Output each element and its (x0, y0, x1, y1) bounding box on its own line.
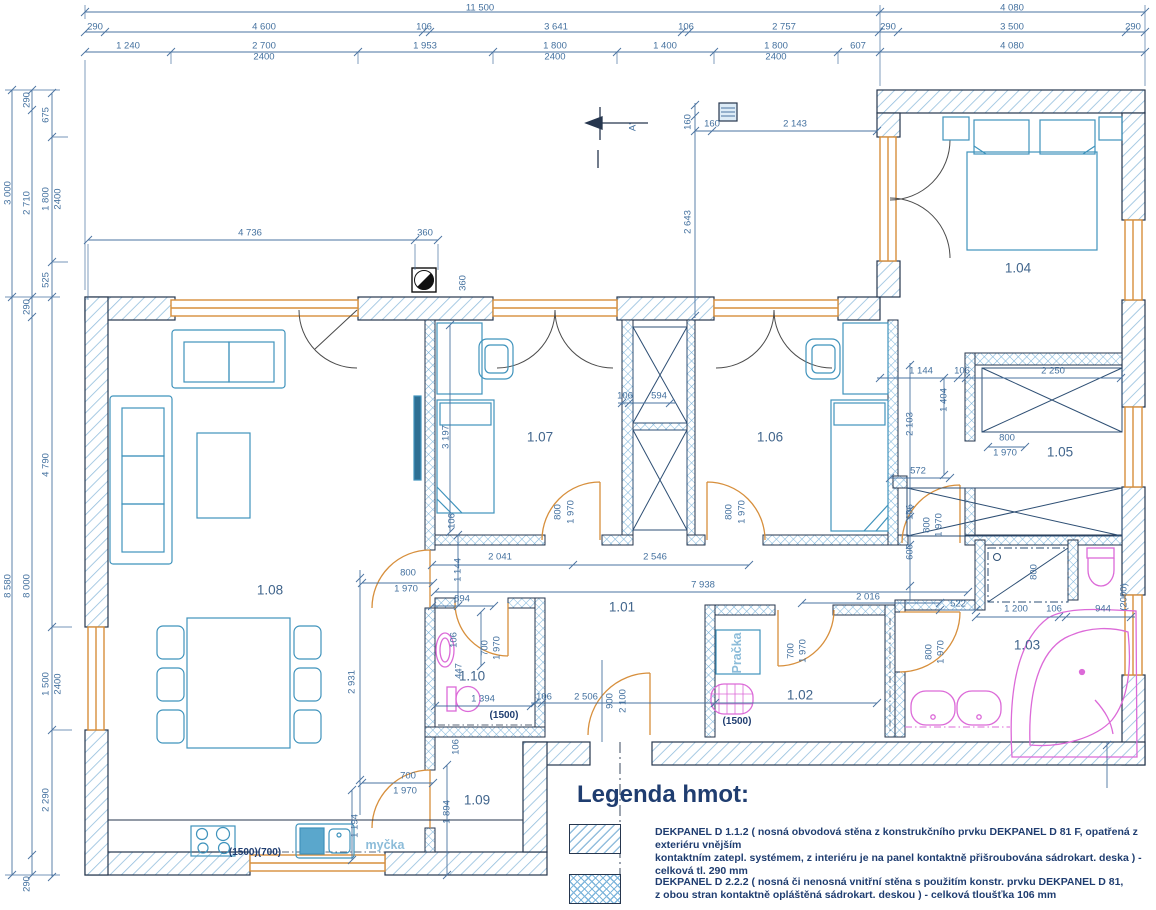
french-door-arcs (497, 310, 613, 368)
window (1125, 220, 1142, 300)
desk-and-chair (437, 323, 513, 394)
window (1125, 595, 1142, 675)
wc-sink (436, 633, 454, 667)
window (714, 300, 838, 316)
kitchen-counter (108, 820, 523, 858)
window (1125, 407, 1142, 487)
bed (437, 400, 494, 513)
shower (988, 548, 1068, 602)
laundry-sink (711, 684, 753, 714)
legend-line: DEKPANEL D 2.2.2 ( nosná či nenosná vnit… (655, 876, 1156, 889)
washing-machine (716, 630, 760, 674)
door-arc (542, 482, 600, 540)
door-arc (778, 610, 834, 666)
coffee-table (197, 433, 250, 518)
double-bed (943, 117, 1122, 250)
window (88, 627, 104, 730)
legend-line: kontaktním zatepl. systémem, z interiéru… (655, 852, 1156, 878)
window (171, 300, 358, 316)
door-arc (372, 770, 430, 828)
living-french-door (299, 310, 357, 368)
legend-line: DEKPANEL D 1.1.2 ( nosná obvodová stěna … (655, 826, 1156, 852)
closets (633, 327, 1122, 602)
terrace-door-frame (880, 137, 896, 261)
legend-item-text: DEKPANEL D 1.1.2 ( nosná obvodová stěna … (655, 826, 1156, 878)
exterior-walls (85, 90, 1145, 875)
legend-line: z obou stran kontaktně opláštěná sádroka… (655, 889, 1156, 902)
interior-doors (372, 482, 960, 828)
door-arc (372, 550, 430, 608)
entry-door-arc (588, 673, 650, 735)
bathroom-sink (911, 691, 955, 725)
vent (719, 103, 737, 121)
legend-swatch-exterior-wall (569, 824, 621, 854)
legend-item-text: DEKPANEL D 2.2.2 ( nosná či nenosná vnit… (655, 876, 1156, 902)
sofa (110, 396, 172, 564)
chimney (412, 268, 436, 292)
legend-swatch-interior-wall (569, 874, 621, 904)
terrace-door-arcs (890, 140, 950, 258)
section-marker (586, 107, 648, 168)
wardrobe (633, 327, 687, 423)
tv (414, 396, 421, 480)
dining-table-set (157, 618, 321, 748)
symbols (412, 103, 890, 885)
bed (831, 400, 888, 531)
bathtub (1011, 609, 1137, 757)
sofa (172, 330, 285, 388)
wardrobe (907, 488, 1122, 536)
wardrobe (633, 430, 687, 530)
floor-plan-drawing (0, 0, 1156, 910)
wc-dash-line (438, 618, 890, 734)
desk-and-chair (806, 323, 888, 394)
toilet (1087, 548, 1114, 586)
door-arc (707, 482, 765, 540)
toilet (447, 687, 480, 712)
legend-title: Legenda hmot: (577, 781, 749, 809)
floor-plan-page: 11 5004 0802904 6001063 6411062 7572903 … (0, 0, 1156, 910)
kitchen-sink (296, 824, 354, 858)
door-arc (900, 612, 960, 672)
bathroom-sink (957, 691, 1001, 725)
